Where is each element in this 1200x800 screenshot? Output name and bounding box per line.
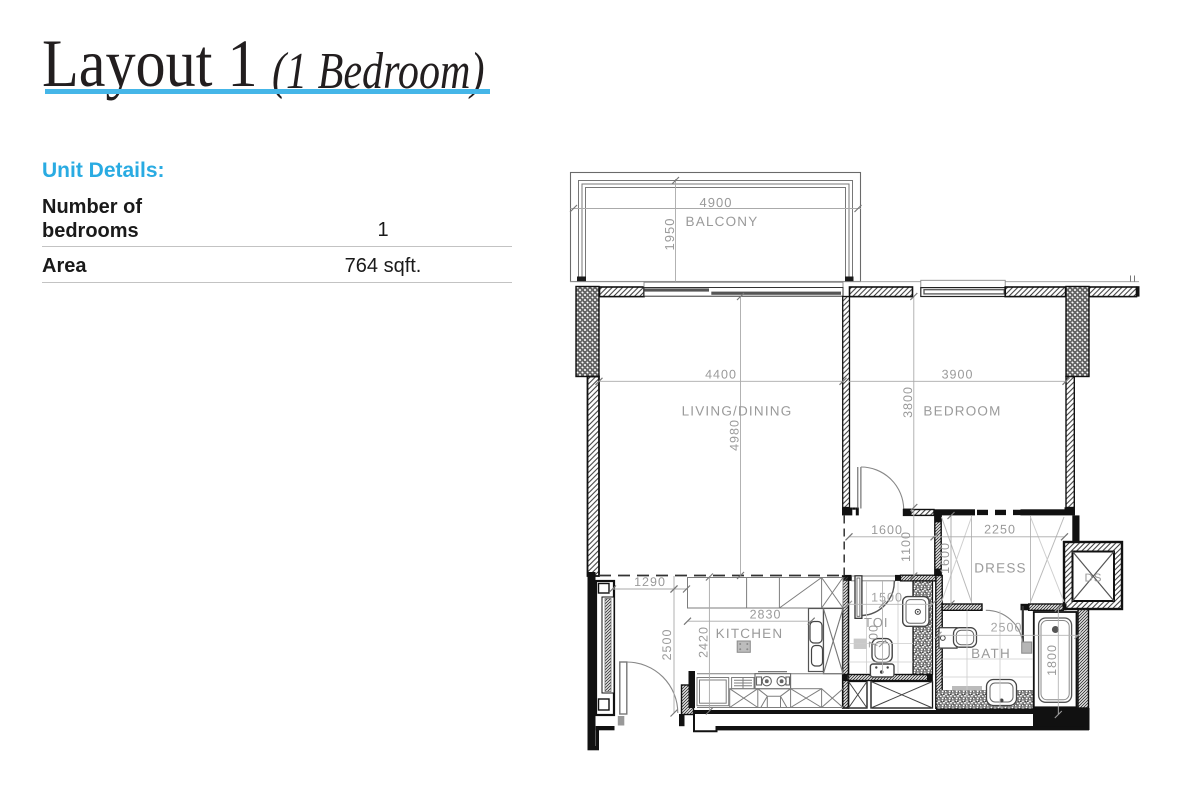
svg-text:BATH: BATH	[971, 646, 1011, 661]
svg-text:2500: 2500	[660, 629, 674, 661]
svg-text:4400: 4400	[705, 368, 737, 382]
svg-text:KITCHEN: KITCHEN	[716, 626, 784, 641]
svg-text:2830: 2830	[750, 608, 782, 622]
svg-text:1600: 1600	[938, 542, 952, 574]
svg-text:2420: 2420	[697, 626, 711, 658]
svg-text:1950: 1950	[662, 218, 677, 251]
svg-text:3800: 3800	[901, 386, 915, 418]
svg-text:2250: 2250	[984, 523, 1016, 537]
svg-text:1100: 1100	[899, 531, 913, 562]
svg-text:DRESS: DRESS	[974, 561, 1027, 576]
svg-text:1290: 1290	[634, 575, 666, 589]
svg-text:DS: DS	[1085, 573, 1103, 585]
svg-text:3900: 3900	[942, 368, 974, 382]
svg-text:BALCONY: BALCONY	[686, 214, 759, 229]
svg-text:1500: 1500	[871, 591, 903, 605]
svg-text:4900: 4900	[700, 195, 733, 210]
svg-text:LIVING/DINING: LIVING/DINING	[682, 404, 793, 419]
svg-text:1800: 1800	[1045, 644, 1059, 676]
svg-text:BEDROOM: BEDROOM	[923, 404, 1001, 419]
svg-text:TOI: TOI	[864, 615, 888, 630]
svg-text:2500: 2500	[991, 621, 1023, 635]
svg-text:4980: 4980	[728, 419, 742, 451]
